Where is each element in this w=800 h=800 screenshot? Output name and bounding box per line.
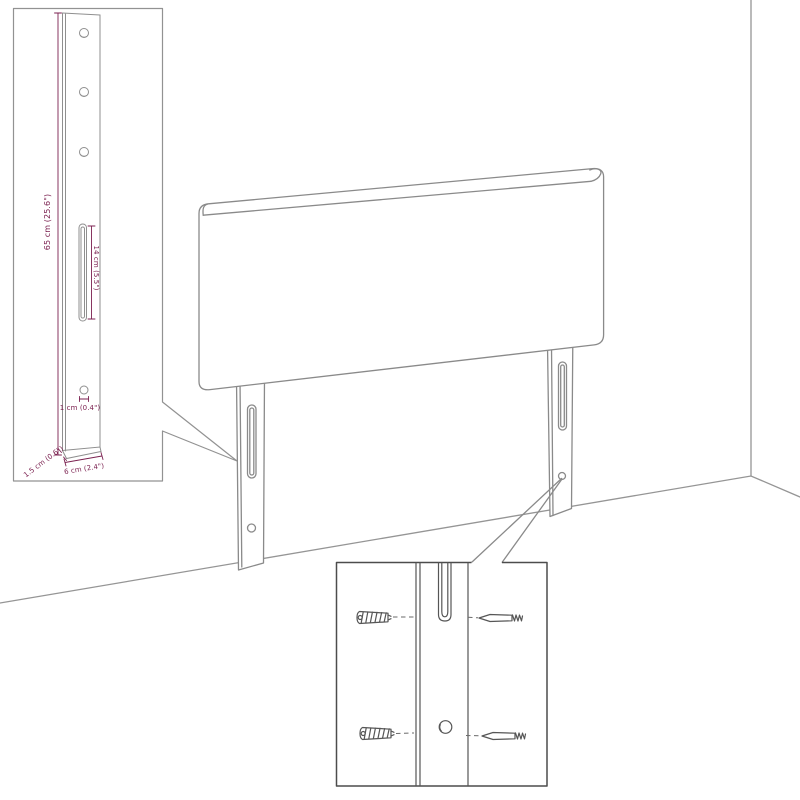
left-leg (237, 377, 265, 570)
right-leg (548, 343, 573, 517)
dim-label-hole: 1 cm (0.4") (60, 404, 101, 412)
dim-label-height: 65 cm (25.6") (43, 194, 52, 251)
mount-detail-inset (337, 479, 563, 787)
diagram-canvas: 65 cm (25.6") 14 cm (5.5") 1 cm (0.4") 1… (0, 0, 800, 800)
headboard-panel (199, 169, 604, 390)
dim-label-slot: 14 cm (5.5") (92, 245, 100, 290)
headboard-dimension-diagram: 65 cm (25.6") 14 cm (5.5") 1 cm (0.4") 1… (0, 0, 800, 800)
